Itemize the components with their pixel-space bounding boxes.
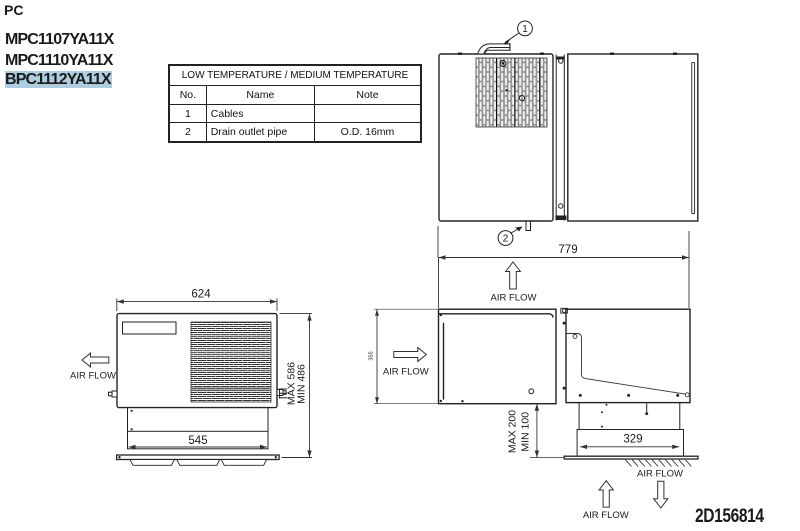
svg-text:AIR FLOW: AIR FLOW (383, 367, 429, 378)
svg-text:MIN 100: MIN 100 (519, 412, 531, 452)
svg-text:355: 355 (369, 351, 375, 360)
svg-text:AIR FLOW: AIR FLOW (70, 371, 116, 382)
svg-text:AIR FLOW: AIR FLOW (583, 510, 629, 521)
svg-text:779: 779 (558, 244, 577, 256)
svg-text:1: 1 (522, 24, 528, 35)
svg-text:624: 624 (191, 289, 211, 301)
svg-text:2: 2 (503, 234, 509, 245)
svg-text:329: 329 (623, 434, 642, 446)
svg-text:545: 545 (188, 435, 207, 447)
svg-text:MAX 200: MAX 200 (507, 410, 519, 453)
svg-text:AIR FLOW: AIR FLOW (637, 469, 683, 480)
svg-text:AIR FLOW: AIR FLOW (491, 293, 537, 304)
svg-text:MIN 486: MIN 486 (296, 364, 308, 404)
